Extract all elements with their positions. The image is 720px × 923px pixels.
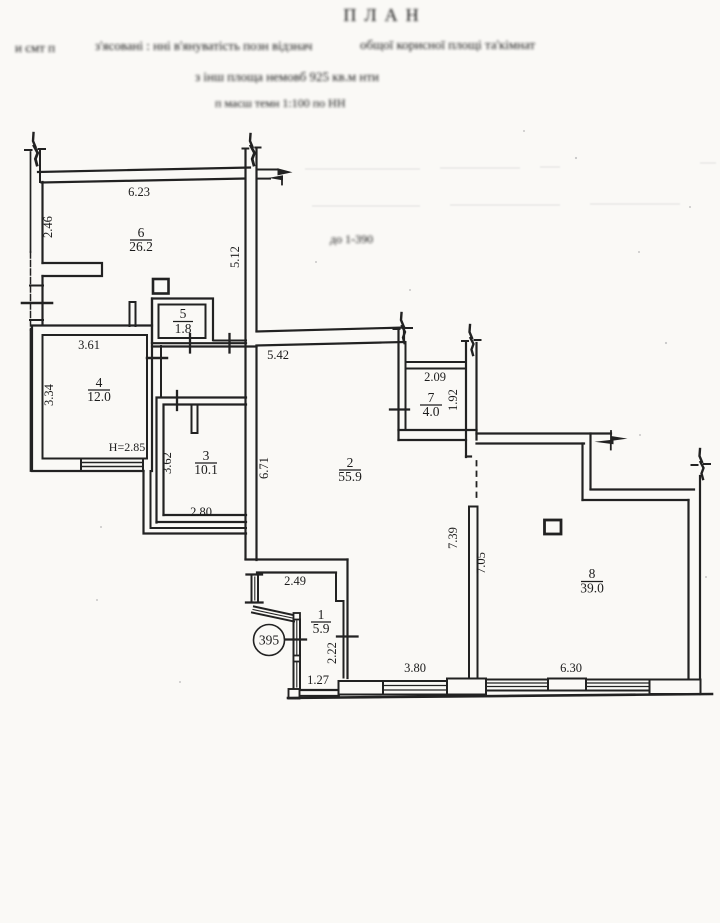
svg-text:26.2: 26.2	[129, 239, 153, 254]
svg-text:2.80: 2.80	[190, 505, 212, 519]
svg-text:39.0: 39.0	[580, 581, 604, 596]
svg-text:4.0: 4.0	[423, 404, 440, 419]
svg-text:395: 395	[259, 633, 280, 648]
svg-text:общої корисної площі та'кімнат: общої корисної площі та'кімнат	[360, 37, 536, 52]
svg-text:3.34: 3.34	[42, 383, 56, 406]
svg-text:и смт п: и смт п	[15, 40, 55, 55]
svg-text:6.30: 6.30	[560, 661, 582, 675]
svg-text:2: 2	[347, 455, 354, 470]
svg-text:1.27: 1.27	[307, 673, 329, 687]
svg-text:2.46: 2.46	[41, 216, 55, 238]
svg-text:7.39: 7.39	[446, 527, 460, 549]
svg-text:до 1-390: до 1-390	[330, 232, 373, 246]
svg-text:1.8: 1.8	[175, 321, 192, 336]
svg-text:з інш площа немовб 925 кв.м: з інш площа немовб 925 кв.м нти	[195, 69, 379, 84]
svg-text:7.05: 7.05	[474, 552, 488, 574]
svg-text:H=2.85: H=2.85	[109, 440, 145, 454]
svg-text:3.80: 3.80	[404, 661, 426, 675]
svg-text:ПЛАН: ПЛАН	[343, 5, 426, 25]
svg-text:4: 4	[96, 375, 103, 390]
svg-text:6.23: 6.23	[128, 185, 150, 199]
svg-text:3.61: 3.61	[78, 338, 100, 352]
svg-text:8: 8	[589, 566, 596, 581]
svg-text:5.12: 5.12	[228, 246, 242, 268]
svg-text:3: 3	[203, 448, 210, 463]
svg-text:2.22: 2.22	[325, 642, 339, 664]
svg-text:2.49: 2.49	[284, 574, 306, 588]
svg-text:55.9: 55.9	[338, 469, 362, 484]
svg-text:з'ясовані : нні в'януватість: з'ясовані : нні в'януватість позн відзна…	[95, 38, 313, 53]
svg-text:6: 6	[138, 225, 145, 240]
svg-text:1: 1	[318, 607, 325, 622]
svg-text:6.71: 6.71	[257, 457, 271, 479]
svg-text:5: 5	[180, 306, 187, 321]
svg-text:12.0: 12.0	[87, 389, 111, 404]
svg-text:5.42: 5.42	[267, 348, 289, 362]
svg-text:2.09: 2.09	[424, 370, 446, 384]
svg-text:10.1: 10.1	[194, 462, 218, 477]
svg-text:7: 7	[428, 390, 435, 405]
svg-text:5.9: 5.9	[313, 621, 330, 636]
svg-text:3.62: 3.62	[160, 452, 174, 474]
svg-text:1.92: 1.92	[446, 389, 460, 411]
svg-text:п масш темн 1:100 по НН: п масш темн 1:100 по НН	[215, 96, 346, 110]
